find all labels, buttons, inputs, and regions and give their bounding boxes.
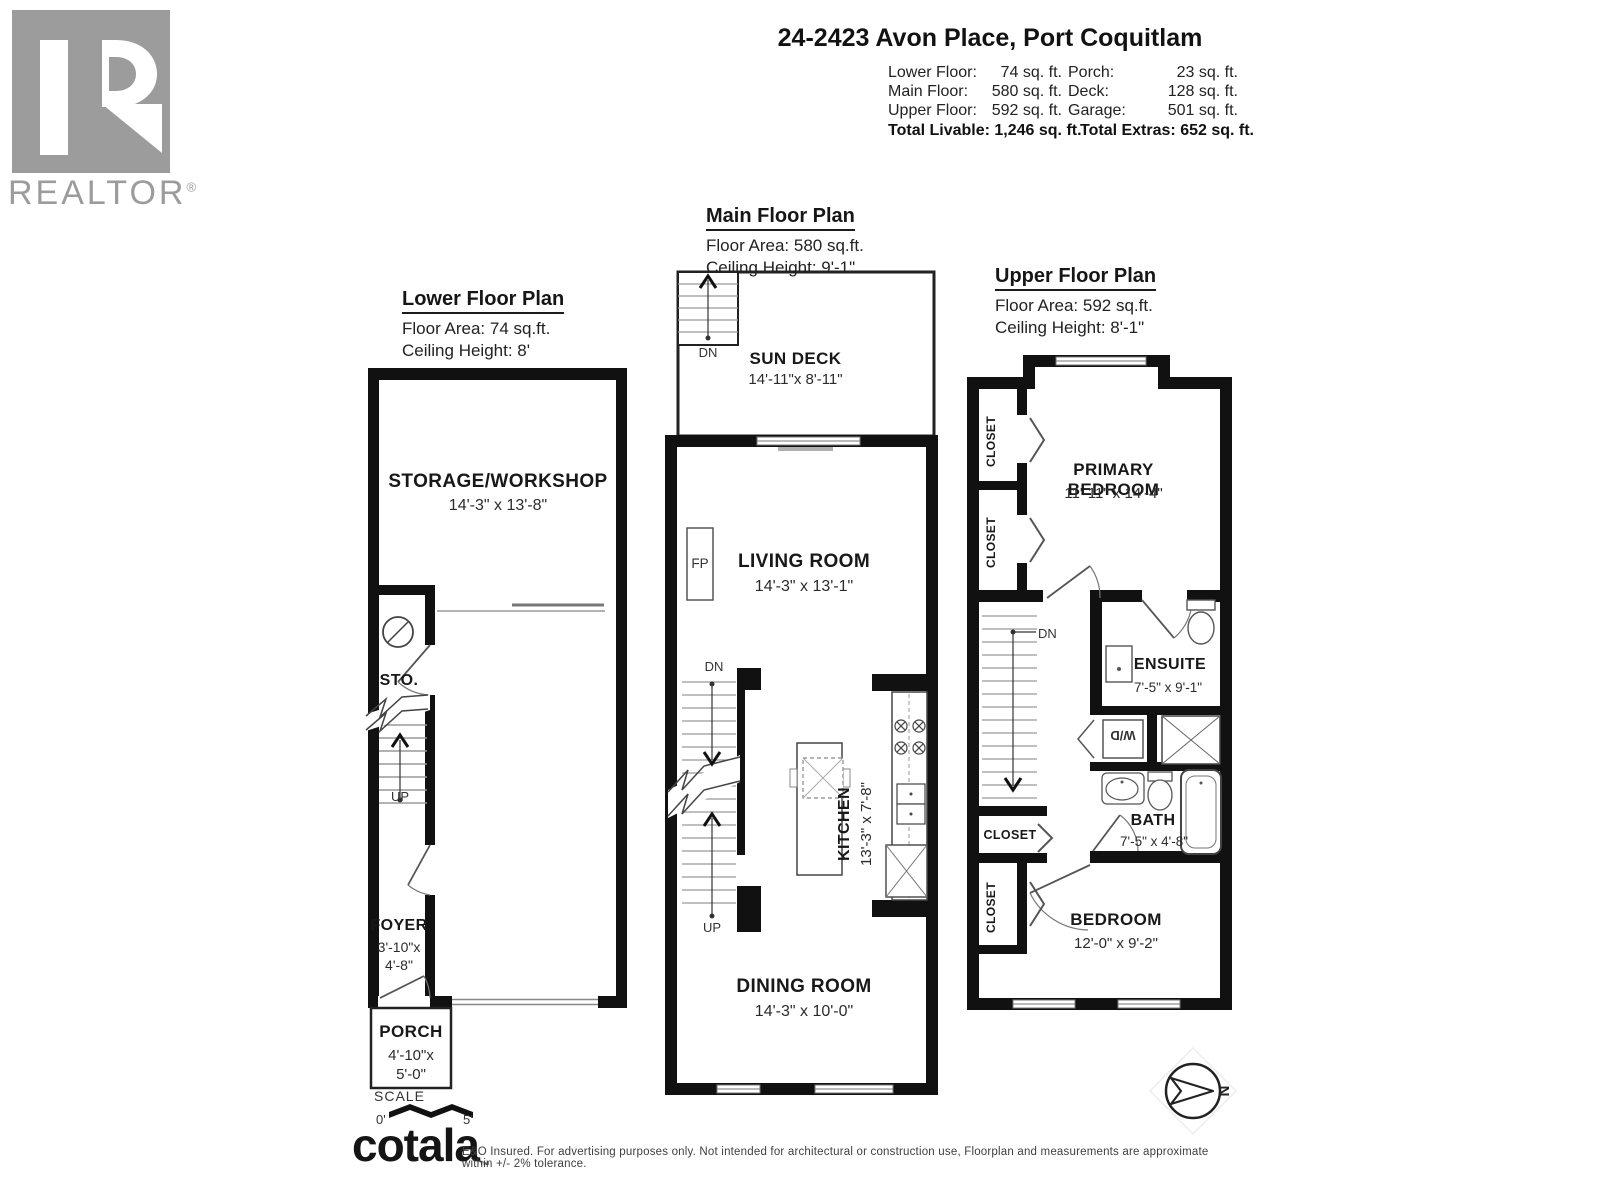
room-foyer-dims: 3'-10"x: [368, 939, 430, 955]
room-storage-name: STORAGE/WORKSHOP: [372, 471, 624, 493]
upper-plan-title: Upper Floor Plan: [995, 265, 1156, 291]
room-primary-dims: 11'-11" x 14'-4": [1026, 485, 1201, 502]
room-dining-dims: 14'-3" x 10'-0": [714, 1003, 894, 1021]
stat-value: 580 sq. ft.: [952, 83, 1062, 101]
disclaimer-text: E&O Insured. For advertising purposes on…: [462, 1146, 1232, 1170]
closet-label: CLOSET: [984, 514, 1000, 570]
room-bath-name: BATH: [1124, 812, 1182, 830]
room-sundeck-dims: 14'-11"x 8'-11": [708, 371, 883, 388]
stat-value: 23 sq. ft.: [1128, 64, 1238, 82]
lower-plan-ceiling: Ceiling Height: 8': [402, 341, 530, 361]
total-extras-label: Total Extras:: [1080, 122, 1176, 139]
room-ensuite-name: ENSUITE: [1130, 656, 1210, 674]
closet-label: CLOSET: [982, 828, 1038, 842]
lower-plan-title: Lower Floor Plan: [402, 288, 564, 314]
stat-value: 501 sq. ft.: [1128, 102, 1238, 120]
room-sundeck-name: SUN DECK: [708, 349, 883, 369]
fireplace-label: FP: [687, 556, 713, 571]
washer-dryer-label: W/D: [1103, 728, 1143, 743]
room-foyer-name: FOYER: [368, 917, 430, 935]
room-porch-name: PORCH: [370, 1022, 452, 1042]
realtor-wordmark: REALTOR®: [8, 174, 199, 213]
stat-value: 128 sq. ft.: [1128, 83, 1238, 101]
cotala-brand-text: cotala: [352, 1119, 479, 1171]
room-bedroom-name: BEDROOM: [1056, 910, 1176, 930]
north-compass: N: [1140, 1040, 1250, 1145]
room-kitchen-dims: 13'-3" x 7'-8": [858, 732, 878, 917]
room-storage-dims: 14'-3" x 13'-8": [372, 497, 624, 515]
scale-label: SCALE: [374, 1088, 425, 1104]
realtor-logo: [10, 8, 176, 178]
stat-value: 74 sq. ft.: [952, 64, 1062, 82]
floorplan-page: REALTOR® 24-2423 Avon Place, Port Coquit…: [0, 0, 1600, 1200]
closet-label: CLOSET: [984, 876, 1000, 938]
room-bath-dims: 7'-5" x 4'-8": [1108, 834, 1200, 849]
registered-mark: ®: [186, 180, 199, 195]
upper-plan-ceiling: Ceiling Height: 8'-1": [995, 318, 1144, 338]
room-ensuite-dims: 7'-5" x 9'-1": [1118, 680, 1218, 695]
stairs-up-label: UP: [380, 789, 420, 804]
total-extras: Total Extras: 652 sq. ft.: [1080, 122, 1254, 140]
closet-label: CLOSET: [984, 413, 1000, 469]
room-dining-name: DINING ROOM: [714, 976, 894, 998]
room-porch-dims: 5'-0": [370, 1066, 452, 1083]
stairs-dn-label: DN: [696, 659, 732, 674]
north-label: N: [1215, 1086, 1232, 1097]
upper-plan-area: Floor Area: 592 sq.ft.: [995, 296, 1153, 316]
stat-label: Deck:: [1068, 83, 1109, 101]
stairs-dn-label: DN: [1038, 626, 1072, 641]
room-porch-dims: 4'-10"x: [370, 1047, 452, 1064]
page-title: 24-2423 Avon Place, Port Coquitlam: [760, 24, 1220, 53]
room-living-name: LIVING ROOM: [714, 551, 894, 573]
total-livable-value: 1,246 sq. ft.: [994, 122, 1081, 139]
room-bedroom-dims: 12'-0" x 9'-2": [1048, 935, 1184, 952]
lower-plan-area: Floor Area: 74 sq.ft.: [402, 319, 550, 339]
stairs-up-label: UP: [694, 920, 730, 935]
total-livable: Total Livable: 1,246 sq. ft.: [888, 122, 1082, 140]
main-plan-area: Floor Area: 580 sq.ft.: [706, 236, 864, 256]
stat-label: Porch:: [1068, 64, 1114, 82]
room-foyer-dims: 4'-8": [368, 957, 430, 973]
total-extras-value: 652 sq. ft.: [1180, 122, 1254, 139]
room-sto-name: STO.: [368, 672, 430, 690]
stat-value: 592 sq. ft.: [952, 102, 1062, 120]
main-plan-title: Main Floor Plan: [706, 205, 855, 231]
realtor-text: REALTOR: [8, 174, 186, 212]
total-livable-label: Total Livable:: [888, 122, 990, 139]
room-living-dims: 14'-3" x 13'-1": [714, 578, 894, 596]
stat-label: Garage:: [1068, 102, 1126, 120]
room-kitchen-name: KITCHEN: [836, 742, 858, 907]
